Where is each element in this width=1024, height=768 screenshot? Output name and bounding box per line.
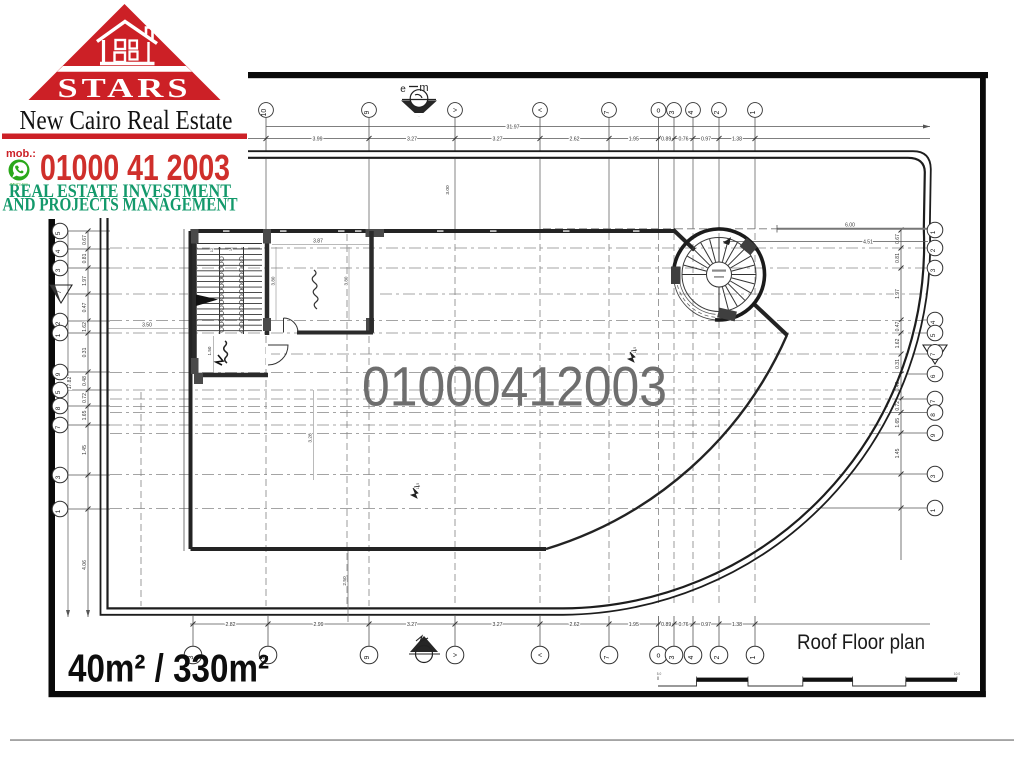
svg-text:2: 2	[55, 321, 62, 325]
svg-text:3.28: 3.28	[308, 433, 314, 443]
svg-text:0.67: 0.67	[82, 235, 88, 245]
svg-text:1: 1	[750, 656, 757, 660]
svg-text:7: 7	[930, 399, 937, 403]
svg-text:1.45: 1.45	[895, 448, 901, 458]
svg-text:1: 1	[930, 230, 937, 234]
svg-text:7: 7	[604, 111, 611, 115]
svg-text:e: e	[400, 84, 406, 95]
svg-text:1.65: 1.65	[895, 418, 901, 428]
svg-text:0.97: 0.97	[701, 137, 711, 143]
svg-text:6: 6	[930, 374, 937, 378]
svg-text:0.81: 0.81	[82, 253, 88, 263]
svg-text:o: o	[657, 108, 661, 115]
svg-text:4.51: 4.51	[863, 239, 873, 245]
svg-text:0.81: 0.81	[895, 253, 901, 263]
svg-text:8: 8	[55, 406, 62, 410]
svg-text:<: <	[538, 108, 542, 115]
svg-text:4: 4	[688, 656, 695, 660]
svg-text:1.95: 1.95	[629, 137, 639, 143]
svg-text:9: 9	[364, 111, 371, 115]
svg-text:8: 8	[930, 413, 937, 417]
svg-text:9: 9	[930, 433, 937, 437]
svg-text:1: 1	[930, 508, 937, 512]
svg-text:2: 2	[714, 111, 721, 115]
svg-text:01000412003: 01000412003	[362, 355, 667, 418]
svg-text:mob.:: mob.:	[6, 148, 36, 160]
svg-text:2: 2	[714, 656, 721, 660]
svg-text:<: <	[538, 653, 542, 660]
svg-text:3.27: 3.27	[492, 622, 502, 628]
svg-text:3.80: 3.80	[344, 276, 349, 285]
svg-text:3.87: 3.87	[313, 239, 323, 245]
svg-text:3.00: 3.00	[445, 185, 451, 195]
svg-text:3: 3	[55, 475, 62, 479]
svg-text:0.47: 0.47	[895, 321, 901, 331]
svg-text:2.62: 2.62	[569, 137, 579, 143]
svg-text:>: >	[453, 653, 457, 660]
svg-text:5: 5	[55, 390, 62, 394]
svg-text:1.38: 1.38	[732, 622, 742, 628]
svg-text:0.48: 0.48	[82, 376, 88, 386]
svg-text:0.31: 0.31	[82, 347, 88, 357]
svg-text:5: 5	[930, 333, 937, 337]
svg-text:10.0: 10.0	[954, 672, 960, 676]
svg-text:0.31: 0.31	[895, 359, 901, 369]
svg-text:4.06: 4.06	[82, 560, 88, 570]
svg-text:STARS: STARS	[58, 73, 192, 103]
svg-text:1.65: 1.65	[82, 410, 88, 420]
svg-text:New Cairo Real Estate: New Cairo Real Estate	[20, 105, 233, 135]
svg-text:3.99: 3.99	[312, 137, 322, 143]
svg-text:5.0: 5.0	[657, 672, 662, 676]
svg-text:4: 4	[55, 249, 62, 253]
svg-text:1: 1	[750, 111, 757, 115]
svg-text:m: m	[419, 82, 428, 94]
svg-text:12: 12	[209, 247, 214, 252]
svg-text:31.97: 31.97	[507, 125, 520, 131]
svg-text:40m² / 330m²: 40m² / 330m²	[68, 648, 269, 691]
svg-text:3.27: 3.27	[407, 622, 417, 628]
svg-text:1.95: 1.95	[629, 622, 639, 628]
svg-text:0.72: 0.72	[82, 393, 88, 403]
svg-text:11.5: 11.5	[633, 347, 637, 353]
svg-text:1: 1	[55, 333, 62, 337]
svg-text:3: 3	[55, 268, 62, 272]
svg-text:0.76: 0.76	[678, 622, 688, 628]
svg-text:11.5: 11.5	[416, 483, 420, 489]
svg-text:0.97: 0.97	[701, 622, 711, 628]
svg-text:0.67: 0.67	[895, 234, 901, 244]
svg-text:3.80: 3.80	[271, 276, 276, 285]
svg-text:1.62: 1.62	[895, 338, 901, 348]
svg-text:2.99: 2.99	[313, 622, 323, 628]
svg-text:10: 10	[261, 109, 268, 117]
svg-text:3: 3	[930, 474, 937, 478]
svg-text:9: 9	[55, 372, 62, 376]
svg-text:7: 7	[604, 656, 611, 660]
svg-text:1.45: 1.45	[82, 445, 88, 455]
svg-text:1.97: 1.97	[82, 276, 88, 286]
svg-text:1.50: 1.50	[207, 346, 212, 355]
svg-text:>: >	[453, 108, 457, 115]
svg-text:0.76: 0.76	[678, 137, 688, 143]
svg-text:7: 7	[55, 425, 62, 429]
svg-text:0.89: 0.89	[661, 137, 671, 143]
svg-text:1.62: 1.62	[82, 322, 88, 332]
svg-text:2.82: 2.82	[225, 622, 235, 628]
svg-text:Roof Floor plan: Roof Floor plan	[797, 630, 925, 654]
svg-text:6.00: 6.00	[845, 223, 855, 229]
svg-text:2.50: 2.50	[342, 576, 348, 586]
svg-text:3.50: 3.50	[142, 322, 152, 328]
svg-text:4: 4	[930, 320, 937, 324]
svg-text:2: 2	[930, 248, 937, 252]
svg-text:9: 9	[364, 656, 371, 660]
svg-text:1: 1	[55, 509, 62, 513]
svg-text:1.38: 1.38	[732, 137, 742, 143]
svg-text:AND PROJECTS MANAGEMENT: AND PROJECTS MANAGEMENT	[3, 196, 239, 216]
svg-text:17.82: 17.82	[67, 377, 73, 390]
svg-text:1.97: 1.97	[895, 289, 901, 299]
svg-text:o: o	[657, 653, 661, 660]
svg-text:3: 3	[669, 111, 676, 115]
svg-text:0.89: 0.89	[661, 622, 671, 628]
svg-text:2.62: 2.62	[569, 622, 579, 628]
svg-text:3: 3	[669, 656, 676, 660]
svg-text:5: 5	[55, 231, 62, 235]
svg-text:3.27: 3.27	[407, 137, 417, 143]
svg-text:4: 4	[688, 111, 695, 115]
svg-text:3.27: 3.27	[492, 137, 502, 143]
svg-text:0.47: 0.47	[82, 302, 88, 312]
svg-text:3: 3	[930, 268, 937, 272]
